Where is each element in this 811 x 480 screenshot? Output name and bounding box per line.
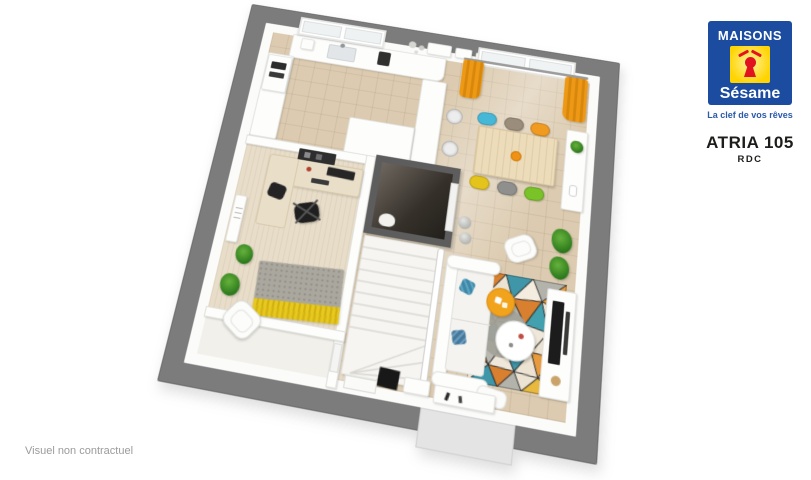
curtain-right xyxy=(562,76,588,123)
console-decor xyxy=(444,392,450,401)
floor-level: RDC xyxy=(697,154,803,165)
model-name: ATRIA 105 xyxy=(697,133,803,153)
keyhole-icon xyxy=(730,46,770,83)
roof-icon xyxy=(738,50,749,57)
maisons-sesame-logo: MAISONS Sésame xyxy=(708,21,792,105)
tv-screen xyxy=(548,301,565,366)
page: MAISONS Sésame La clef de vos rêves ATRI… xyxy=(0,0,811,480)
table-decor xyxy=(518,333,524,339)
armchair-seat-line xyxy=(228,307,256,335)
chair-base xyxy=(295,199,319,224)
brand-block: MAISONS Sésame La clef de vos rêves ATRI… xyxy=(697,21,803,165)
shelf-books xyxy=(315,154,322,161)
coffee-machine xyxy=(377,51,391,66)
soundbar xyxy=(563,311,570,355)
armchair-seat-line xyxy=(509,239,533,258)
small-appliance xyxy=(300,38,315,51)
vase xyxy=(569,185,578,198)
wc-room xyxy=(363,155,461,248)
decor-bowl xyxy=(550,375,561,387)
cushion-split xyxy=(452,318,490,326)
logo-name-top: MAISONS xyxy=(708,21,792,43)
throw-pillow xyxy=(451,330,467,345)
brand-tagline: La clef de vos rêves xyxy=(697,110,803,120)
console-decor xyxy=(458,396,462,403)
office-chair xyxy=(294,201,321,224)
table-decor xyxy=(509,343,514,348)
tray-decor xyxy=(494,296,502,304)
office-rug xyxy=(251,260,344,324)
disclaimer-text: Visuel non contractuel xyxy=(25,445,133,457)
tray-decor xyxy=(502,302,508,308)
plant xyxy=(570,140,584,154)
floorplan-3d xyxy=(157,4,620,465)
roof-icon xyxy=(751,50,762,57)
window-pane xyxy=(302,21,343,38)
logo-name-bottom: Sésame xyxy=(708,85,792,103)
shelf-books xyxy=(304,152,311,158)
window-pane xyxy=(344,27,383,44)
toilet xyxy=(378,212,396,227)
shelf-lines xyxy=(236,207,243,209)
